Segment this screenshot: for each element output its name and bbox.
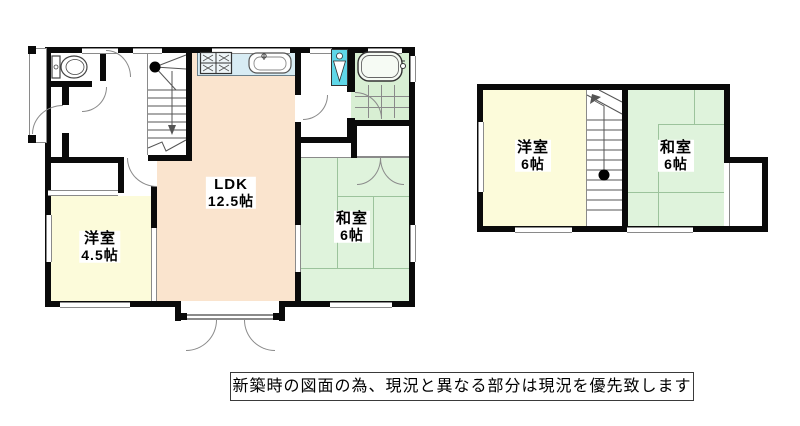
- wall: [762, 157, 768, 232]
- bath-tile-line: [394, 85, 395, 118]
- washing-machine-icon: [331, 49, 348, 86]
- porch-post: [28, 46, 36, 54]
- door-arc: [303, 95, 328, 120]
- door-arc: [82, 87, 107, 112]
- tatami-line: [301, 268, 409, 269]
- wall: [724, 84, 730, 163]
- tatami-line: [694, 90, 695, 124]
- sliding-door: [151, 228, 157, 301]
- wall: [62, 87, 69, 105]
- window: [627, 227, 693, 233]
- room-label-ldk: LDK12.5帖: [206, 177, 256, 209]
- wall: [186, 47, 192, 161]
- room-label-western45: 洋室4.5帖: [79, 231, 120, 263]
- wall: [151, 186, 157, 228]
- window: [60, 302, 130, 308]
- staircase-icon: [587, 90, 622, 226]
- wall: [409, 47, 415, 307]
- terrace-door-cap: [273, 313, 279, 320]
- wall: [279, 301, 285, 321]
- room-label-western6: 洋室6帖: [515, 140, 551, 172]
- window: [478, 122, 484, 192]
- kitchen-stove-icon: [200, 52, 232, 74]
- door-arc: [127, 158, 157, 187]
- wall: [351, 120, 357, 158]
- toilet-icon: [51, 53, 93, 81]
- wall: [295, 160, 301, 225]
- sliding-door: [48, 190, 118, 196]
- tatami-line: [373, 196, 374, 268]
- room-label-japanese6-1f: 和室6帖: [334, 211, 370, 243]
- tatami-line: [658, 192, 659, 226]
- window: [515, 227, 572, 233]
- disclaimer-text: 新築時の図面の為、現況と異なる部分は現況を優先致します: [232, 378, 691, 395]
- wall: [347, 47, 355, 92]
- window: [310, 48, 332, 54]
- wall: [622, 90, 628, 226]
- door-arc: [186, 320, 217, 351]
- tatami-line: [658, 124, 724, 125]
- tatami-line: [628, 192, 724, 193]
- terrace-door-track: [181, 314, 279, 316]
- door-arc: [244, 320, 275, 351]
- balcony-edge-line: [729, 163, 730, 226]
- staircase-icon: [148, 53, 186, 155]
- room-label-japanese6-2f: 和室6帖: [658, 140, 694, 172]
- kitchen-sink-icon: [248, 52, 292, 74]
- window: [410, 56, 416, 82]
- terrace-door-cap: [181, 313, 187, 320]
- wall: [118, 157, 124, 193]
- disclaimer-note: 新築時の図面の為、現況と異なる部分は現況を優先致します: [230, 372, 694, 401]
- door-arc: [106, 50, 131, 77]
- wall: [351, 120, 415, 126]
- porch-post: [28, 135, 36, 143]
- floor-plan-canvas: LDK12.5帖 洋室4.5帖 和室6帖: [0, 0, 800, 426]
- sliding-door: [295, 225, 301, 272]
- window: [46, 215, 52, 262]
- wall: [295, 272, 301, 307]
- wall: [45, 157, 124, 163]
- door-gap: [295, 95, 301, 122]
- bathtub-icon: [357, 51, 407, 82]
- window: [330, 302, 392, 308]
- window: [410, 225, 416, 262]
